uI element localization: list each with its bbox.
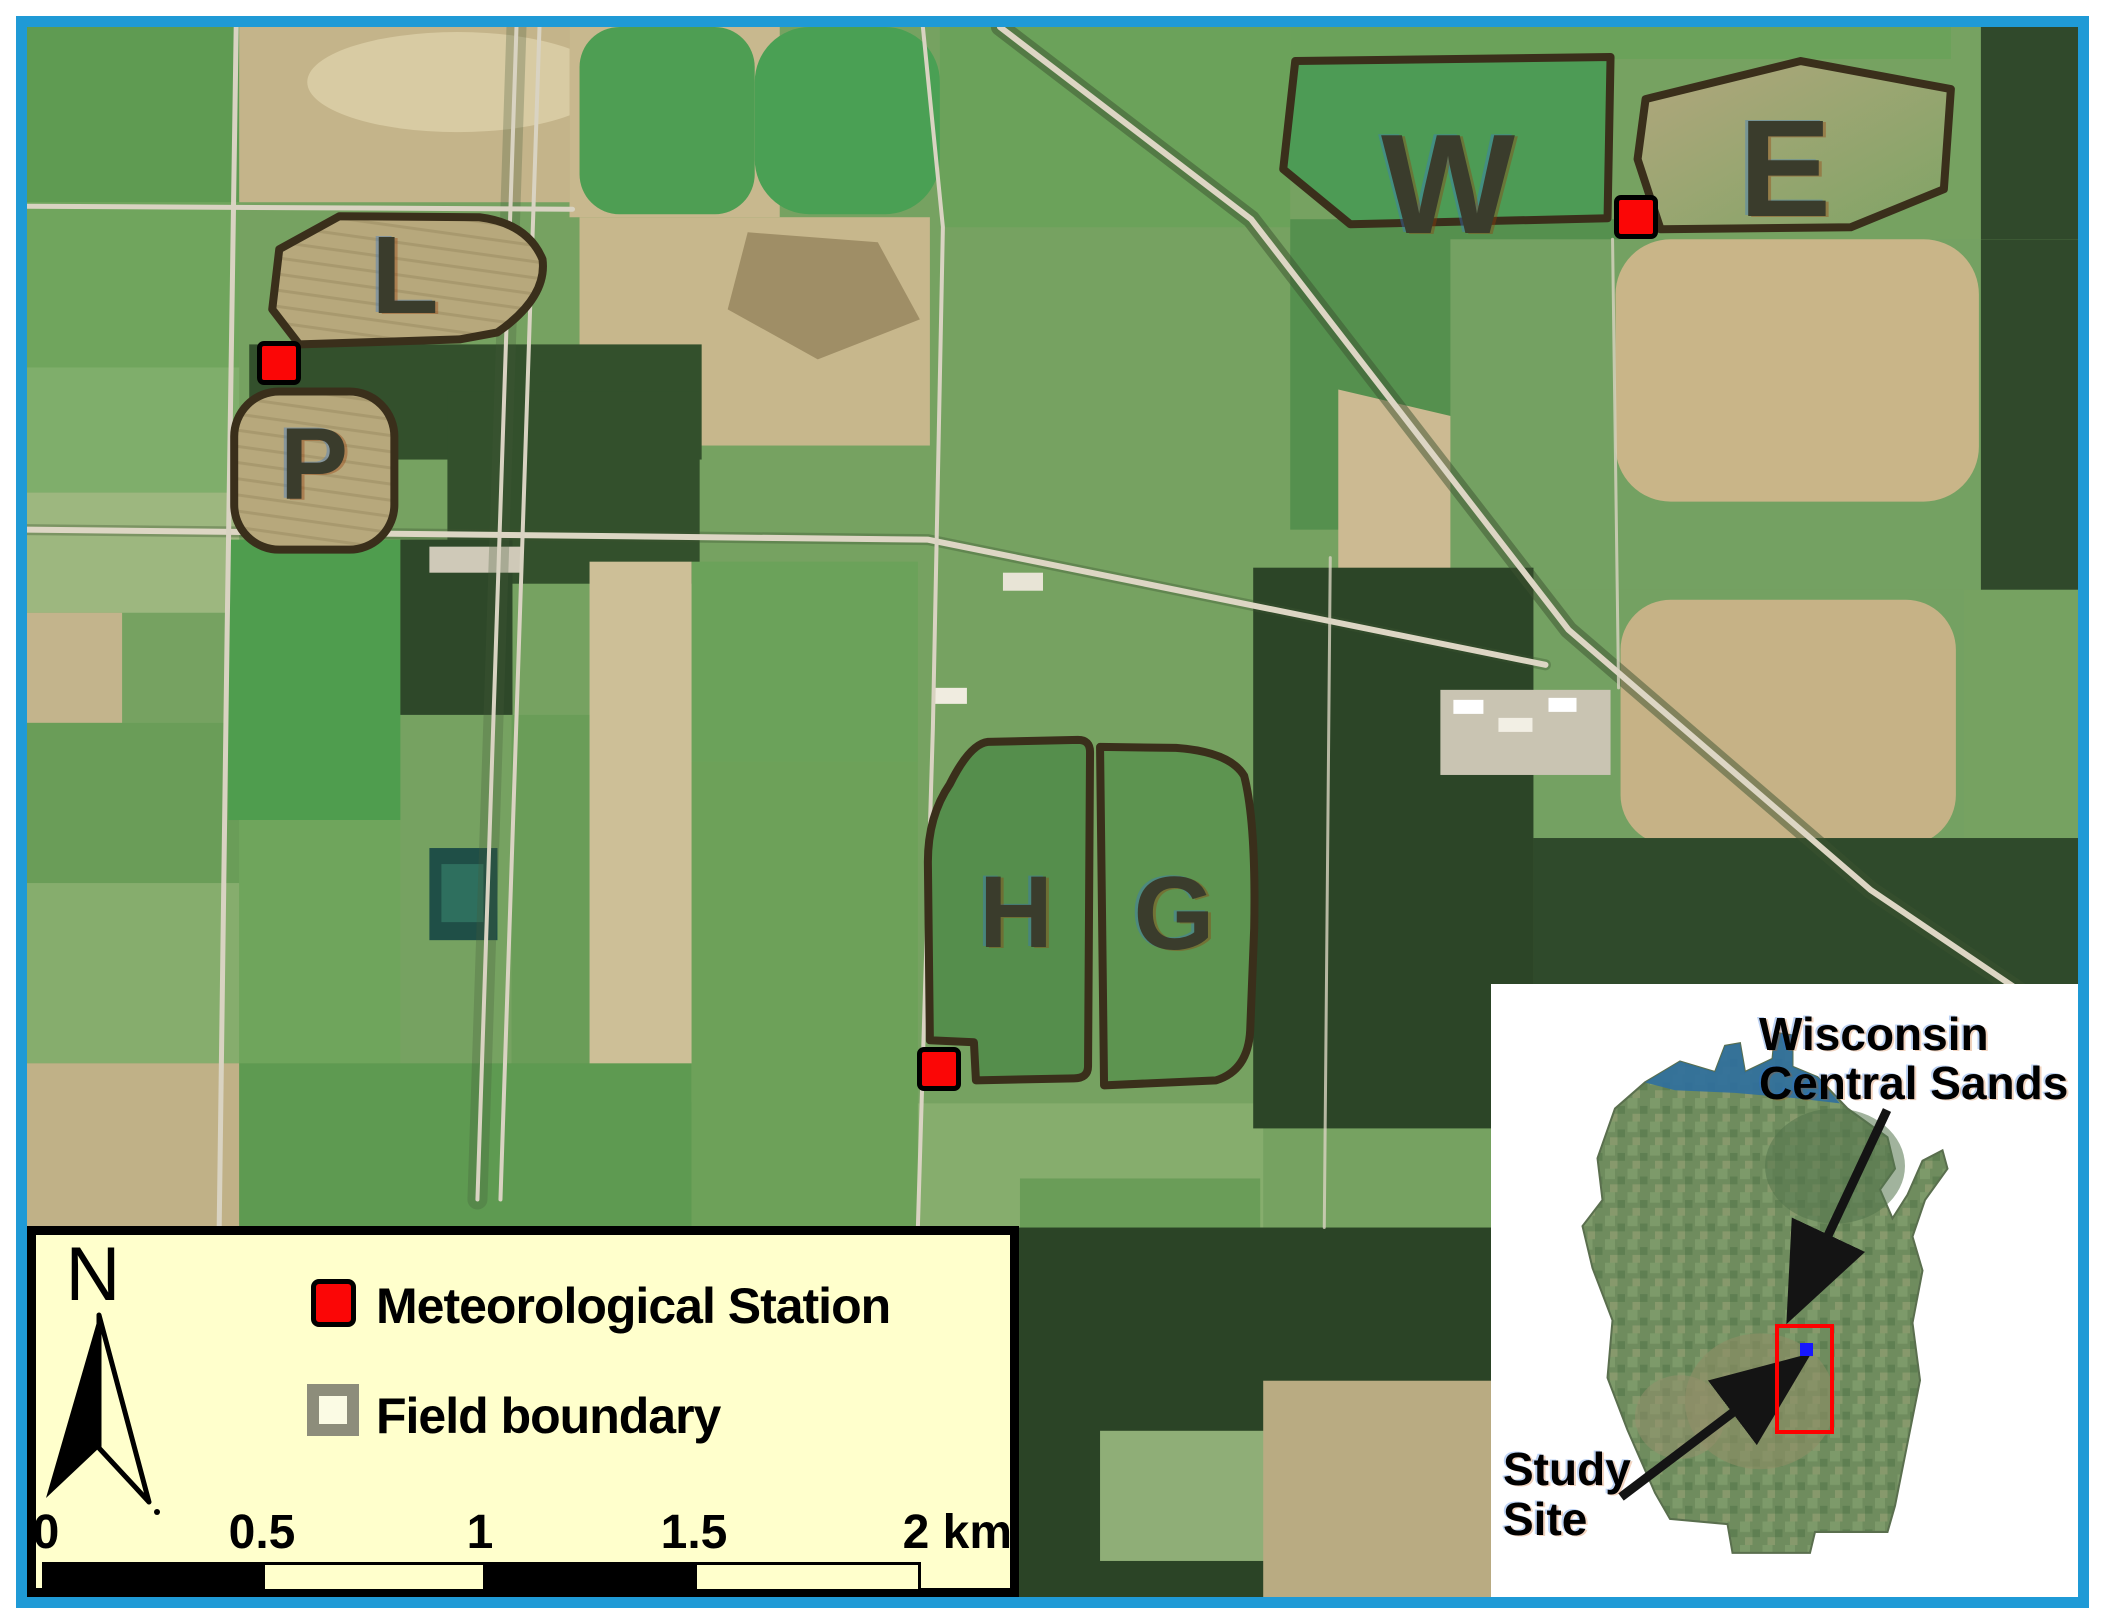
inset-region-label: Wisconsin Central Sands <box>1759 1010 2078 1108</box>
field-label-G: G <box>1134 862 1215 966</box>
scalebar-tick-0: 0 <box>33 1505 60 1560</box>
scale-bar-segment <box>697 1565 918 1589</box>
scale-bar-segment <box>45 1565 265 1589</box>
scale-bar-segment <box>265 1565 483 1589</box>
legend-boundary-swatch <box>307 1384 359 1436</box>
study-area-rect <box>1775 1324 1834 1434</box>
study-site-dot <box>1800 1343 1813 1356</box>
scale-bar <box>42 1562 921 1592</box>
scalebar-tick-2km: 2 km <box>903 1505 1012 1560</box>
scale-bar-segment <box>483 1565 697 1589</box>
inset-arrow-region <box>1794 1110 1887 1308</box>
scalebar-tick-15: 1.5 <box>661 1505 728 1560</box>
met-station-marker-1 <box>257 341 301 385</box>
map-frame: L P W E H G N Meteorological Station <box>16 16 2089 1608</box>
legend-panel: N Meteorological Station Field boundary … <box>27 1226 1019 1597</box>
met-station-marker-3 <box>917 1047 961 1091</box>
field-label-H: H <box>979 861 1053 963</box>
field-label-P: P <box>280 413 348 515</box>
legend-station-swatch <box>311 1279 356 1327</box>
field-label-W: W <box>1381 114 1515 256</box>
inset-site-label: Study Site <box>1503 1444 1683 1544</box>
scalebar-tick-1: 1 <box>467 1505 494 1560</box>
legend-station-label: Meteorological Station <box>376 1277 890 1335</box>
met-station-marker-2 <box>1614 195 1658 239</box>
north-arrow-icon <box>36 1297 186 1522</box>
field-label-E: E <box>1739 100 1831 238</box>
aerial-map: L P W E H G N Meteorological Station <box>27 27 2078 1597</box>
legend-boundary-label: Field boundary <box>376 1387 720 1445</box>
scalebar-tick-05: 0.5 <box>229 1505 296 1560</box>
figure-study-area-map: L P W E H G N Meteorological Station <box>0 0 2105 1624</box>
inset-panel: Wisconsin Central Sands Study Site <box>1491 984 2078 1597</box>
field-label-L: L <box>371 221 438 331</box>
